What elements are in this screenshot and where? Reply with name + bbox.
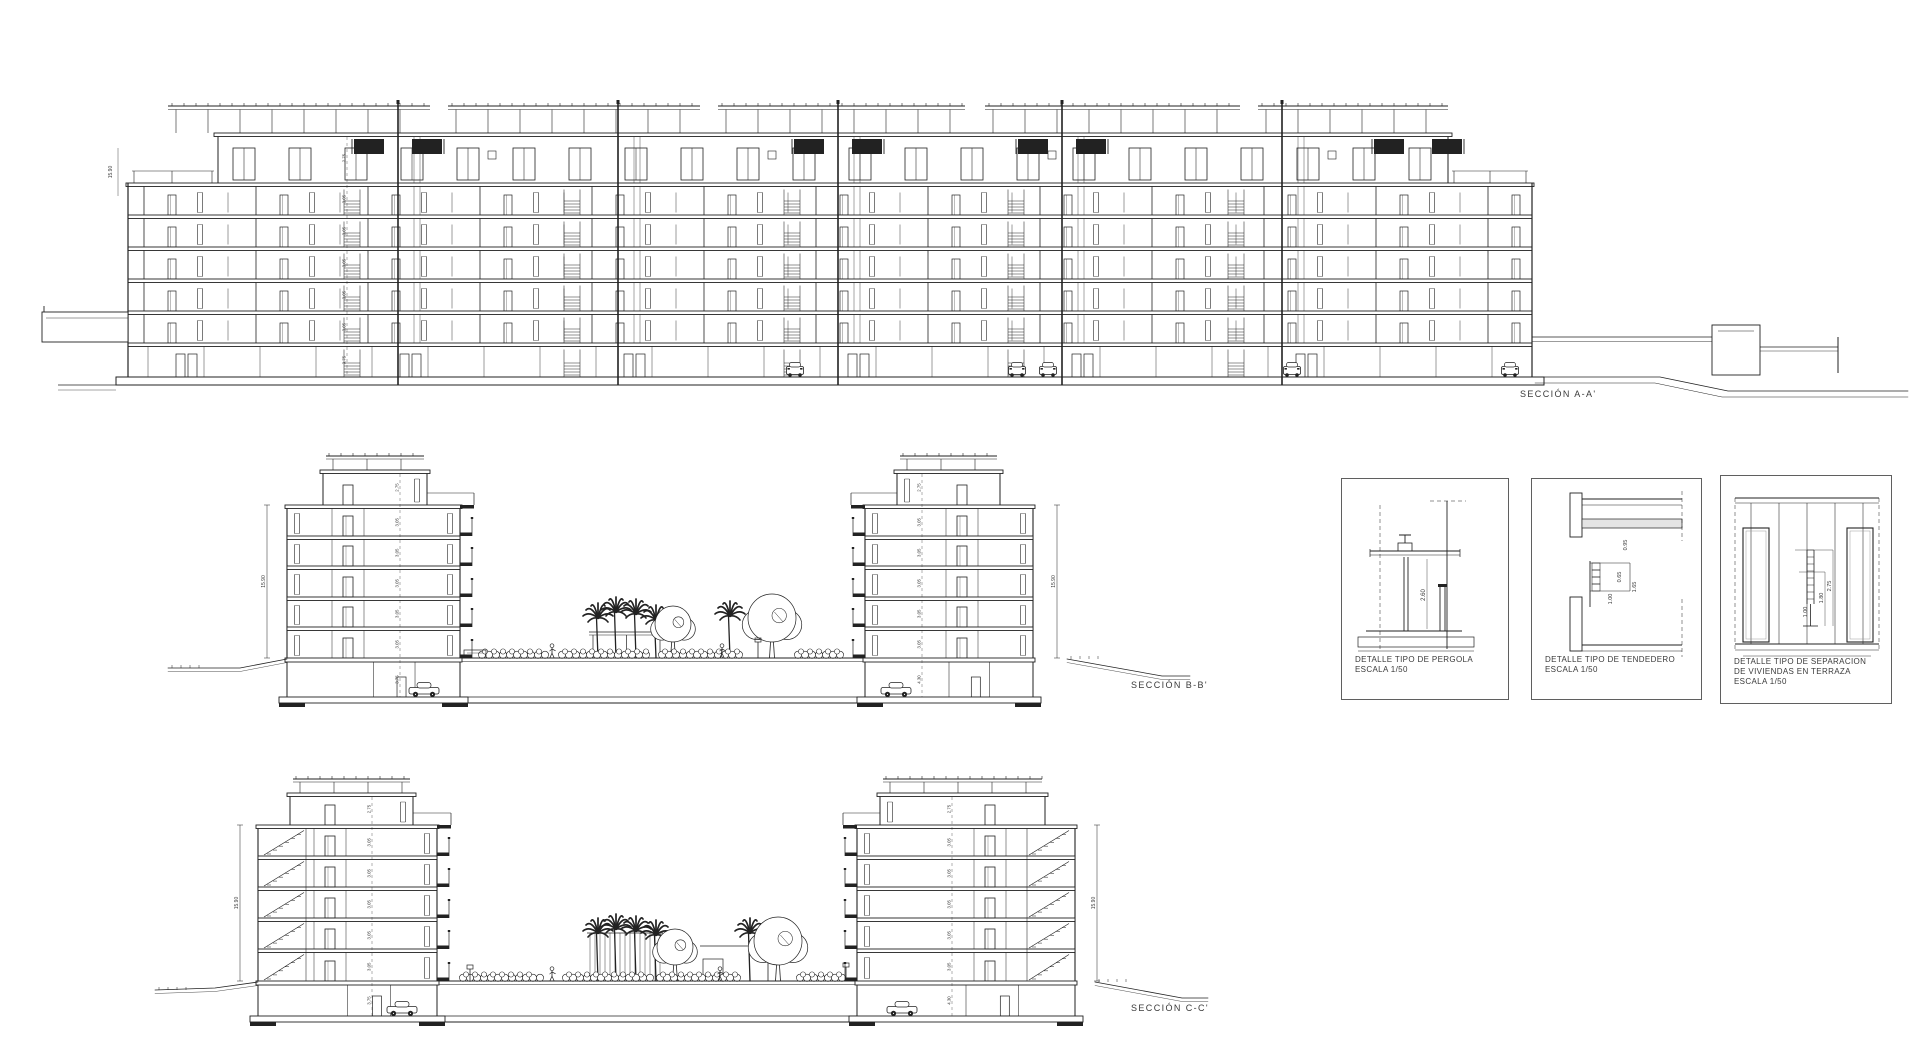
svg-text:3.05: 3.05 — [367, 868, 372, 877]
detail-caption-line: DETALLE TIPO DE TENDEDERO — [1545, 655, 1675, 665]
shrubs-icon — [558, 649, 654, 659]
car-icon — [1040, 363, 1057, 377]
svg-text:15.90: 15.90 — [261, 575, 267, 588]
shrubs-icon — [796, 972, 847, 982]
svg-text:1.80: 1.80 — [1819, 593, 1825, 604]
svg-text:2.75: 2.75 — [917, 483, 922, 492]
svg-text:1.00: 1.00 — [1803, 607, 1809, 618]
car-icon — [409, 683, 439, 698]
section-a-label: SECCIÓN A-A' — [1520, 389, 1597, 399]
person-icon — [550, 644, 556, 658]
svg-text:3.05: 3.05 — [342, 194, 347, 203]
car-icon — [1502, 363, 1519, 377]
svg-text:3.75: 3.75 — [395, 675, 400, 684]
svg-text:3.05: 3.05 — [917, 639, 922, 648]
detail-box-tendedero: 0.950.651.651.00 DETALLE TIPO DE TENDEDE… — [1531, 478, 1702, 700]
svg-text:3.05: 3.05 — [342, 226, 347, 235]
detail-caption-line: DE VIVIENDAS EN TERRAZA — [1734, 667, 1866, 677]
svg-text:3.05: 3.05 — [395, 639, 400, 648]
svg-text:3.75: 3.75 — [367, 996, 372, 1005]
person-icon — [550, 967, 556, 981]
svg-text:4.30: 4.30 — [917, 675, 922, 684]
svg-text:3.05: 3.05 — [367, 930, 372, 939]
svg-text:3.05: 3.05 — [947, 837, 952, 846]
svg-text:3.05: 3.05 — [342, 258, 347, 267]
tower-section-drawing: 2.753.053.053.053.053.053.7515.90 — [261, 453, 474, 707]
svg-text:3.05: 3.05 — [947, 930, 952, 939]
svg-text:3.05: 3.05 — [342, 290, 347, 299]
drawing-sheet: 2.753.053.053.053.053.053.7515.902.753.0… — [0, 0, 1920, 1056]
detail-caption-line: ESCALA 1/50 — [1545, 665, 1675, 675]
tower-section-drawing: 2.753.053.053.053.053.053.7515.90 — [234, 776, 451, 1026]
shrubs-icon — [656, 972, 744, 982]
detail-caption-pergola: DETALLE TIPO DE PERGOLA ESCALA 1/50 — [1355, 655, 1473, 675]
detail-caption-separacion: DETALLE TIPO DE SEPARACION DE VIVIENDAS … — [1734, 657, 1866, 687]
svg-text:3.05: 3.05 — [367, 962, 372, 971]
svg-text:1.65: 1.65 — [1632, 582, 1638, 593]
car-icon — [1284, 363, 1301, 377]
shrubs-icon — [562, 972, 654, 982]
dimension-line: 15.90 — [261, 505, 270, 658]
svg-text:3.05: 3.05 — [395, 609, 400, 618]
ground-line-c-right — [1095, 979, 1208, 1002]
svg-text:3.75: 3.75 — [342, 355, 347, 364]
detail-caption-line: DETALLE TIPO DE SEPARACION — [1734, 657, 1866, 667]
detail-caption-line: DETALLE TIPO DE PERGOLA — [1355, 655, 1473, 665]
svg-text:3.05: 3.05 — [367, 899, 372, 908]
car-icon — [387, 1002, 417, 1017]
detail-caption-tendedero: DETALLE TIPO DE TENDEDERO ESCALA 1/50 — [1545, 655, 1675, 675]
svg-text:3.05: 3.05 — [917, 517, 922, 526]
svg-text:15.90: 15.90 — [234, 897, 240, 910]
svg-text:2.75: 2.75 — [1827, 581, 1833, 592]
svg-text:3.05: 3.05 — [947, 868, 952, 877]
pergola-sketch: 2.60 — [1358, 501, 1474, 651]
svg-text:2.75: 2.75 — [367, 804, 372, 813]
tower-section-drawing: 2.753.053.053.053.053.054.3015.90 — [851, 453, 1060, 707]
svg-text:3.05: 3.05 — [367, 837, 372, 846]
svg-text:2.75: 2.75 — [395, 483, 400, 492]
palm-tree-icon — [583, 918, 613, 981]
svg-text:3.05: 3.05 — [917, 548, 922, 557]
detail-caption-line: ESCALA 1/50 — [1355, 665, 1473, 675]
svg-text:2.60: 2.60 — [1421, 589, 1427, 601]
svg-text:3.05: 3.05 — [947, 899, 952, 908]
svg-text:3.05: 3.05 — [917, 578, 922, 587]
svg-text:4.30: 4.30 — [947, 996, 952, 1005]
svg-text:15.90: 15.90 — [1051, 575, 1057, 588]
tendedero-sketch: 0.950.651.651.00 — [1570, 491, 1682, 657]
section-b-label: SECCIÓN B-B' — [1131, 680, 1208, 690]
dimension-line: 15.90 — [234, 825, 243, 981]
svg-text:2.75: 2.75 — [947, 804, 952, 813]
tower-section-drawing: 2.753.053.053.053.053.054.3015.90 — [843, 776, 1100, 1026]
shrubs-icon — [794, 649, 843, 659]
separacion-sketch: 2.751.801.00 — [1735, 498, 1879, 656]
svg-text:15.90: 15.90 — [1091, 897, 1097, 910]
car-icon — [881, 683, 911, 698]
svg-text:0.65: 0.65 — [1617, 572, 1623, 583]
courtyard-drawing — [460, 594, 865, 703]
svg-text:3.05: 3.05 — [917, 609, 922, 618]
courtyard-drawing — [437, 914, 857, 1022]
shrubs-icon — [478, 649, 550, 659]
car-icon — [887, 1002, 917, 1017]
section-a-drawing: 2.753.053.053.053.053.053.7515.90 — [42, 100, 1908, 397]
svg-text:3.05: 3.05 — [395, 517, 400, 526]
svg-text:3.05: 3.05 — [947, 962, 952, 971]
svg-text:3.05: 3.05 — [395, 578, 400, 587]
detail-box-separacion: 2.751.801.00 DETALLE TIPO DE SEPARACION … — [1720, 475, 1892, 704]
section-c-label: SECCIÓN C-C' — [1131, 1003, 1209, 1013]
svg-text:15.90: 15.90 — [108, 166, 114, 179]
tree-icon — [748, 917, 808, 981]
svg-text:2.75: 2.75 — [342, 153, 347, 162]
ground-line-c-left — [155, 982, 258, 994]
tree-icon — [742, 594, 802, 658]
detail-box-pergola: 2.60 DETALLE TIPO DE PERGOLA ESCALA 1/50 — [1341, 478, 1509, 700]
dimension-line: 15.90 — [1051, 505, 1060, 658]
car-icon — [787, 363, 804, 377]
ground-line-b-left — [168, 659, 287, 672]
shrubs-icon — [459, 972, 543, 982]
svg-text:1.00: 1.00 — [1608, 594, 1614, 605]
ground-line-b-right — [1067, 656, 1190, 680]
svg-text:3.05: 3.05 — [395, 548, 400, 557]
svg-text:3.05: 3.05 — [342, 322, 347, 331]
svg-text:0.95: 0.95 — [1623, 540, 1629, 551]
dimension-line: 15.90 — [1091, 825, 1100, 981]
car-icon — [1009, 363, 1026, 377]
detail-caption-line: ESCALA 1/50 — [1734, 677, 1866, 687]
street-lamp-icon — [755, 638, 761, 658]
